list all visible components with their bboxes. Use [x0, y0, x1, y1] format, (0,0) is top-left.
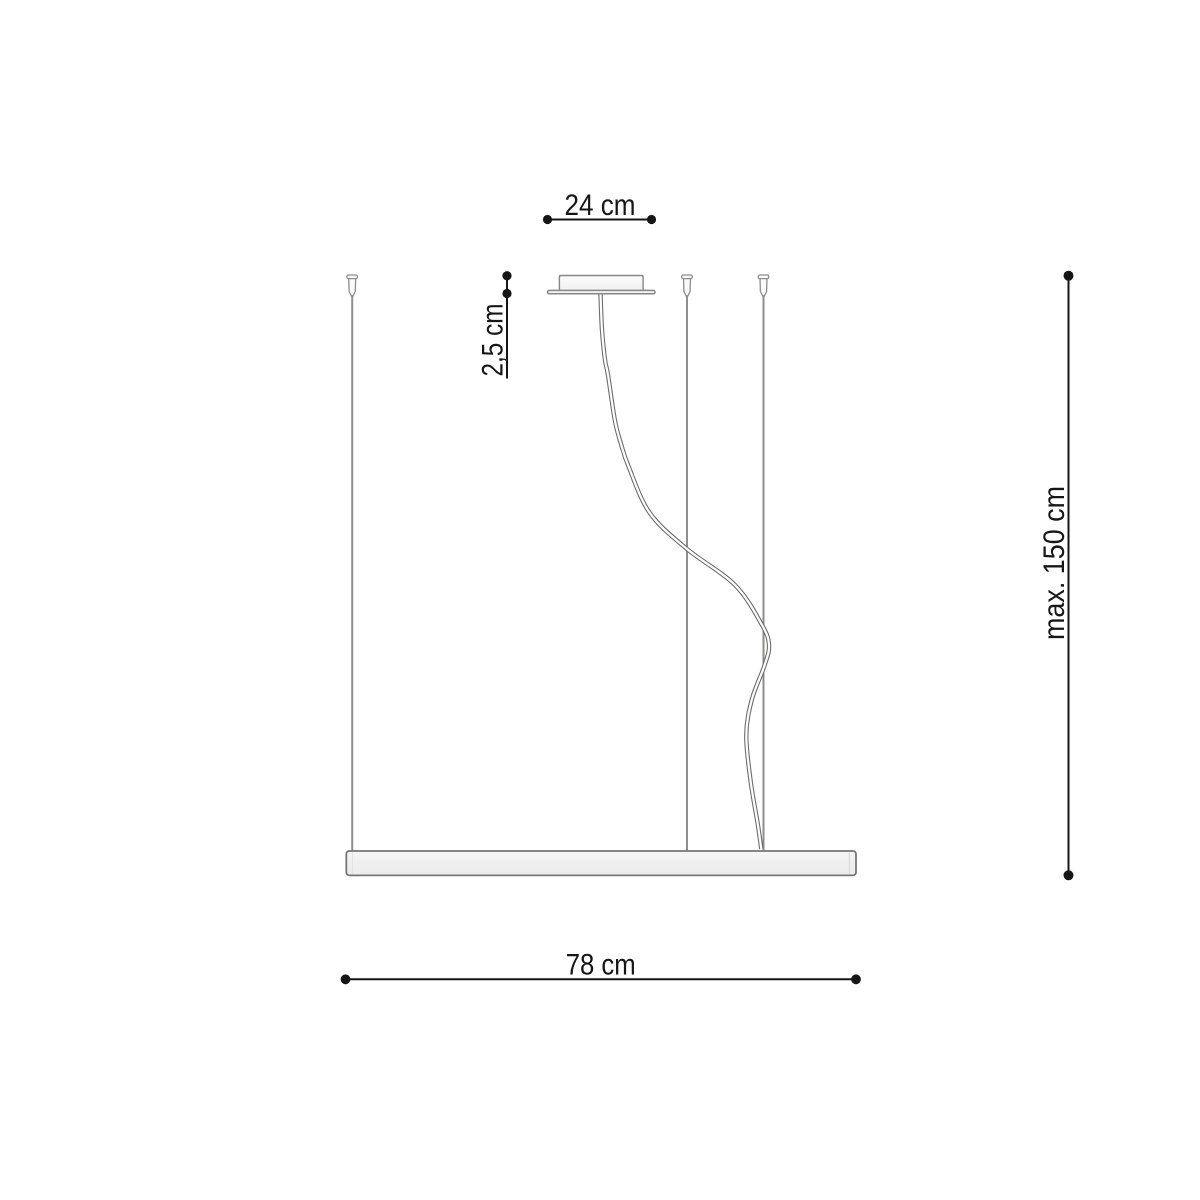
svg-text:2,5 cm: 2,5 cm	[477, 304, 510, 377]
svg-text:24 cm: 24 cm	[565, 189, 636, 222]
svg-text:max. 150 cm: max. 150 cm	[1038, 486, 1071, 640]
svg-text:78 cm: 78 cm	[566, 949, 636, 982]
